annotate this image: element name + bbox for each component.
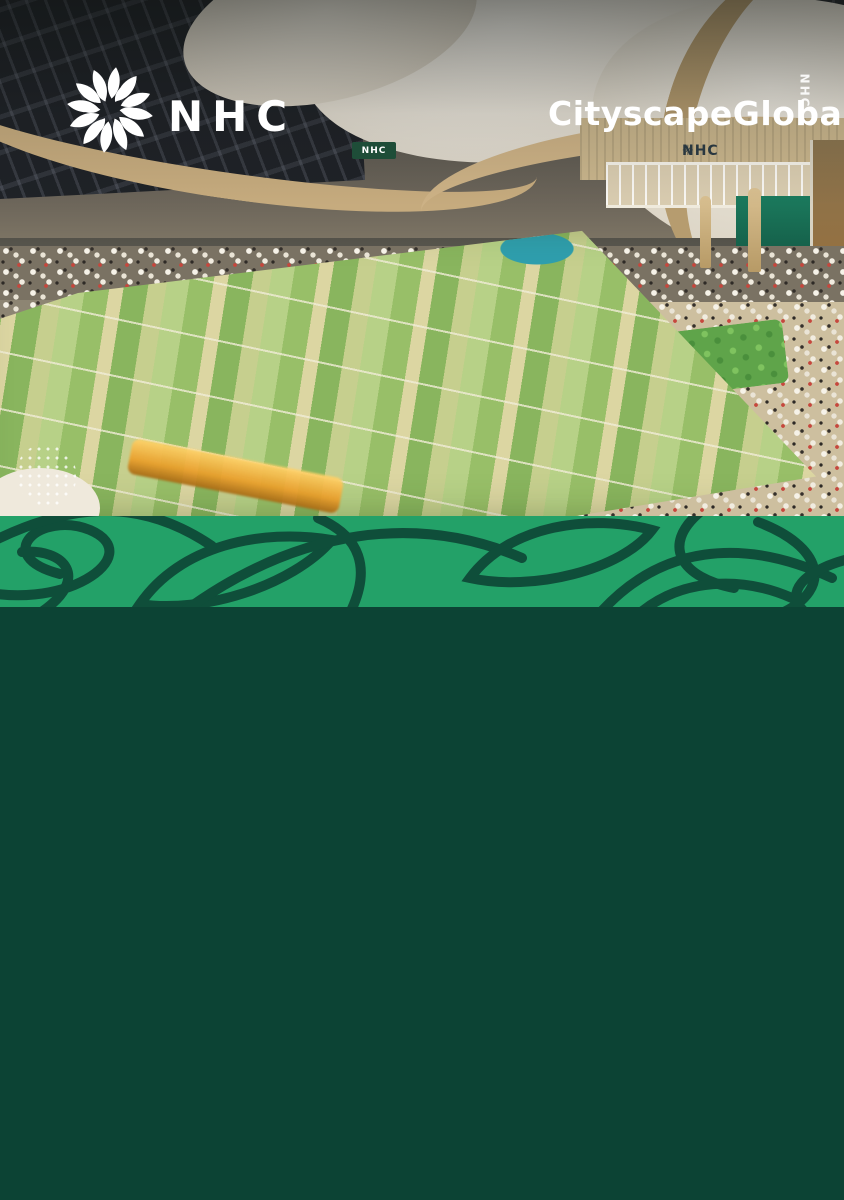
exhibition-photo: ✳ NHC NHC CityscapeGlobal NHC NHC [0, 0, 844, 516]
nhc-pillar-sign: NHC [798, 74, 812, 109]
nhc-logo-icon [62, 62, 158, 158]
announcement-section: منذ بداية العروض الحصرية اختتمنا أول أيا… [0, 607, 844, 1200]
nhc-cityscape-poster: ✳ NHC NHC CityscapeGlobal NHC NHC [0, 0, 844, 1200]
nhc-wordmark: NHC [168, 92, 296, 141]
leaf-pattern-band [0, 516, 844, 607]
nhc-beam-sign: NHC [352, 142, 396, 159]
